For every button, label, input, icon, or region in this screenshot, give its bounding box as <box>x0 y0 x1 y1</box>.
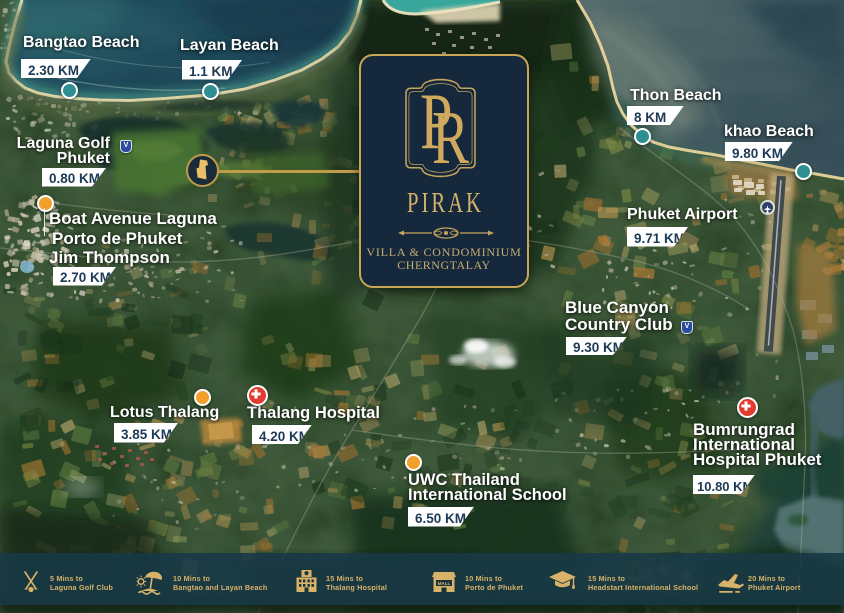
svg-text:MALL: MALL <box>438 581 451 586</box>
